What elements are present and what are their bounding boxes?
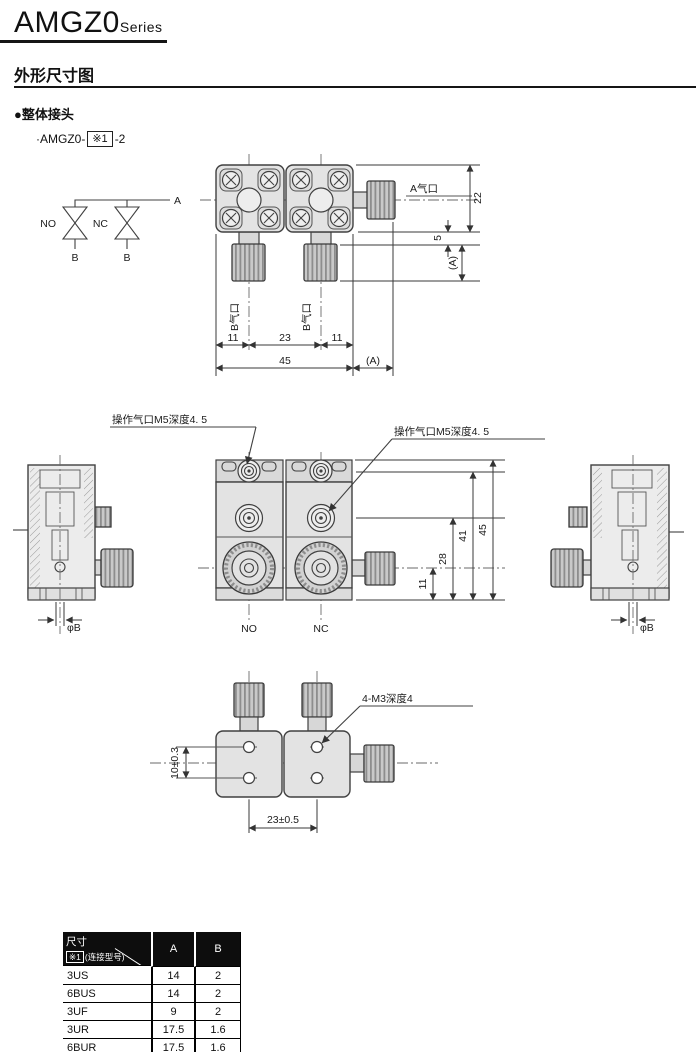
dim-45: 45 [279, 355, 291, 367]
dim-phi-b-left: φB [67, 622, 81, 634]
table-row-b: 2 [194, 967, 240, 985]
table-row-a: 17.5 [151, 1039, 194, 1052]
section-title: 外形尺寸图 [14, 62, 94, 86]
dim-11-right: 11 [332, 332, 343, 344]
op-port-left-label: 操作气口M5深度4. 5 [112, 413, 207, 426]
model-prefix: ·AMGZ0- [36, 132, 85, 146]
table-row-a: 17.5 [151, 1021, 194, 1039]
table-row-model: 6BUR [63, 1039, 151, 1052]
table-row-model: 3UF [63, 1003, 151, 1021]
table-col-b: B [194, 932, 240, 967]
dim-5: 5 [432, 235, 444, 241]
top-view-drawing: A气口 B气口 B气口 11 23 11 45 (A) 22 [200, 154, 484, 376]
pneumatic-symbol: A NO NC B B [40, 195, 181, 264]
middle-drawing-svg: φB φB [0, 410, 700, 666]
table-row-b: 2 [194, 1003, 240, 1021]
dim-22: 22 [472, 192, 484, 204]
table-row-model: 3US [63, 967, 151, 985]
catalog-page: AMGZ0Series 外形尺寸图 ●整体接头 ·AMGZ0- ※1 -2 [0, 0, 700, 1052]
thread-label: 4-M3深度4 [362, 692, 413, 705]
symbol-no-label: NO [40, 218, 56, 230]
table-ref-label: (连接型号) [85, 951, 125, 963]
dim-mid-28: 28 [437, 553, 449, 565]
table-row-a: 14 [151, 985, 194, 1003]
dim-11-left: 11 [228, 332, 239, 344]
front-nc-label: NC [313, 623, 329, 635]
dim-total-45: 45 [477, 524, 489, 536]
table-row-b: 1.6 [194, 1021, 240, 1039]
port-b-left-label: B气口 [228, 303, 241, 331]
model-ref-box: ※1 [87, 131, 112, 147]
table-corner-subtitle: ※1 (连接型号) [66, 951, 125, 963]
series-name: AMGZ0 [14, 6, 120, 39]
symbol-port-b-right-label: B [123, 252, 130, 264]
series-suffix: Series [120, 19, 163, 35]
op-port-right-label: 操作气口M5深度4. 5 [394, 425, 489, 438]
table-corner-cell: 尺寸 ※1 (连接型号) [63, 932, 151, 966]
left-section-view: φB [13, 455, 133, 634]
table-row-b: 1.6 [194, 1039, 240, 1052]
symbol-nc-label: NC [93, 218, 109, 230]
table-corner-title: 尺寸 [66, 934, 87, 949]
table-row-model: 3UR [63, 1021, 151, 1039]
page-title: AMGZ0Series [14, 6, 163, 40]
table-row-model: 6BUS [63, 985, 151, 1003]
table-row-a: 9 [151, 1003, 194, 1021]
dim-body-41: 41 [457, 530, 469, 542]
model-suffix: -2 [115, 132, 126, 146]
front-no-label: NO [241, 623, 257, 635]
table-row-b: 2 [194, 985, 240, 1003]
right-section-view: φB [551, 455, 684, 634]
subsection-title: ●整体接头 [14, 104, 74, 123]
spec-table: 尺寸 ※1 (连接型号) A B 3US 14 2 6BUS 14 2 3UF … [63, 932, 241, 1052]
symbol-port-a-label: A [174, 195, 181, 207]
bottom-drawing-svg: 10±0.3 4-M3深度4 23±0.5 [0, 665, 700, 860]
front-view-drawing: NO NC 操作气口M5深度4. 5 操作气口M5深度4. 5 11 28 41… [110, 413, 545, 635]
port-b-right-label: B气口 [300, 303, 313, 331]
bottom-view-drawing: 10±0.3 4-M3深度4 23±0.5 [150, 671, 473, 833]
top-drawing-svg: A NO NC B B A气口 B气口 [0, 150, 700, 395]
symbol-port-b-left-label: B [71, 252, 78, 264]
dim-23: 23 [279, 332, 291, 344]
dim-hole-spacing-h: 23±0.5 [267, 814, 299, 826]
dim-knob-11: 11 [417, 578, 429, 589]
table-row-a: 14 [151, 967, 194, 985]
dim-hole-spacing-v: 10±0.3 [169, 747, 181, 779]
section-rule [14, 86, 696, 88]
port-a-label: A气口 [410, 182, 438, 195]
dim-phi-b-right: φB [640, 622, 654, 634]
dim-a-vertical: (A) [447, 256, 459, 270]
table-col-a: A [151, 932, 194, 967]
title-rule [0, 40, 167, 43]
model-designation: ·AMGZ0- ※1 -2 [36, 131, 125, 147]
table-ref-box: ※1 [66, 951, 84, 963]
dim-a-horizontal: (A) [366, 355, 380, 367]
knob-nc [295, 542, 347, 594]
knob-no [223, 542, 275, 594]
